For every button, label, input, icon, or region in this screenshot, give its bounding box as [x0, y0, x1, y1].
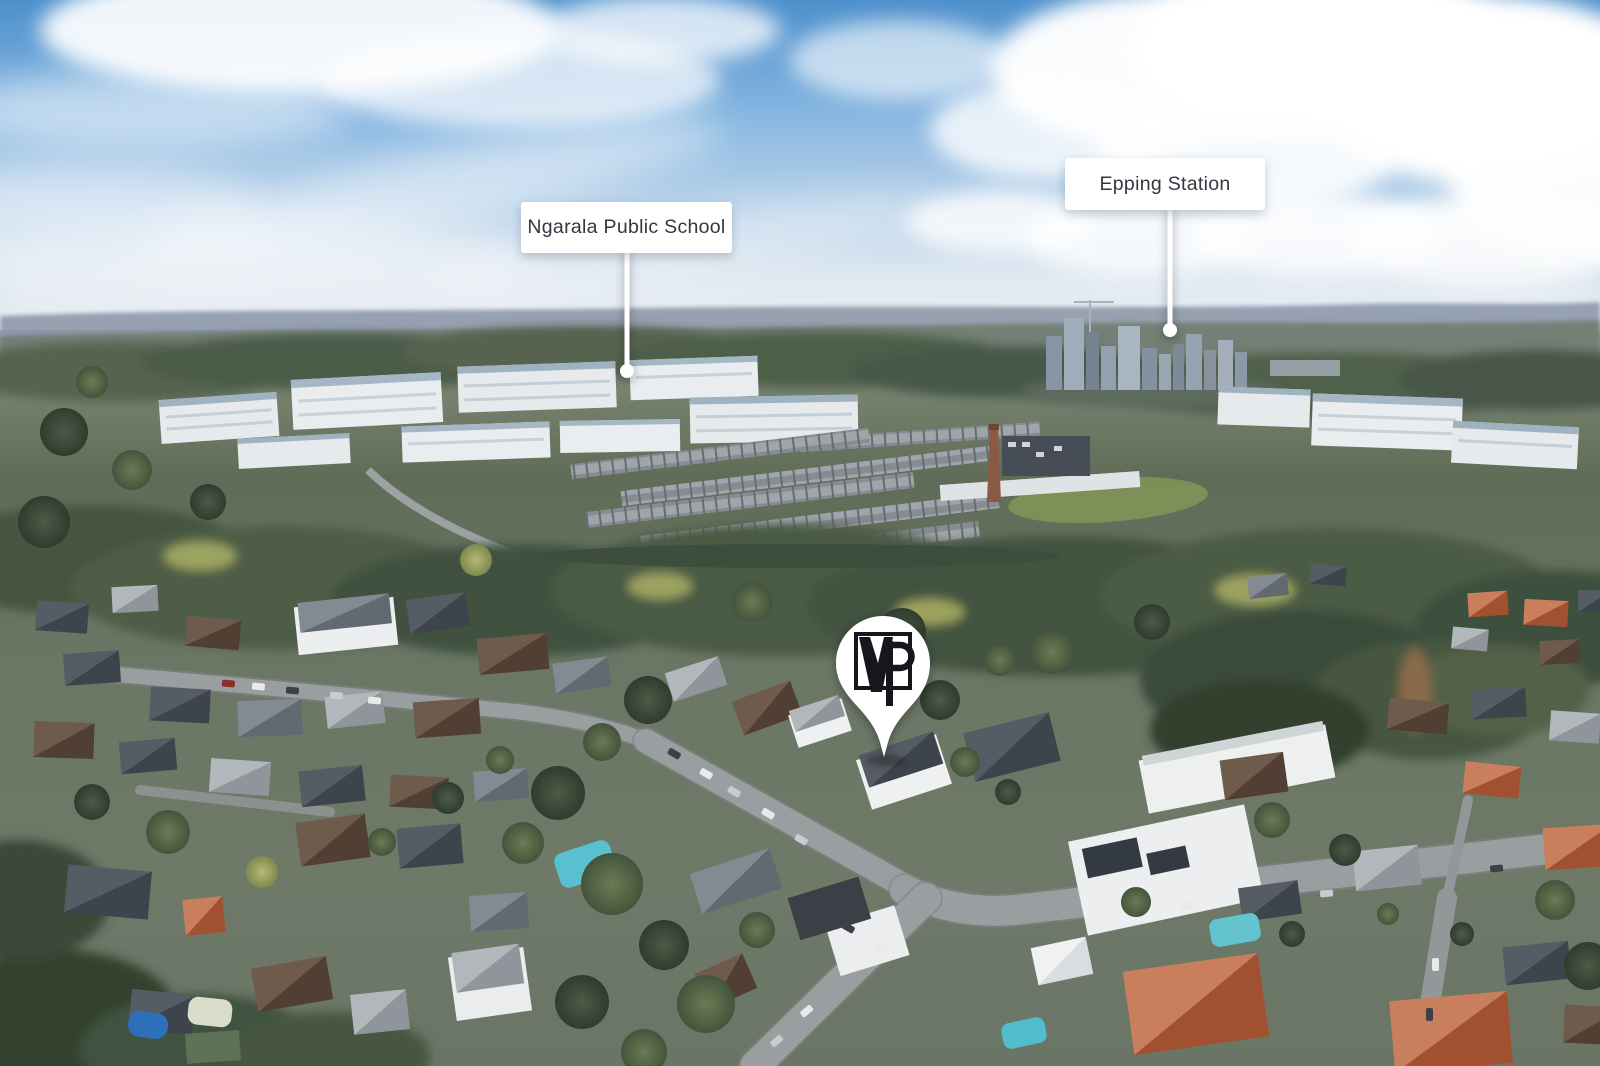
station-leader-dot: [1163, 323, 1177, 337]
school-leader-dot: [620, 364, 634, 378]
aerial-scene: [0, 0, 1600, 1066]
school-label-text: Ngarala Public School: [527, 216, 725, 239]
school-label: Ngarala Public School: [521, 202, 732, 253]
sky: [0, 0, 1600, 345]
station-label: Epping Station: [1065, 158, 1265, 210]
aerial-photo: Ngarala Public School Epping Station: [0, 0, 1600, 1066]
station-label-text: Epping Station: [1099, 173, 1230, 196]
